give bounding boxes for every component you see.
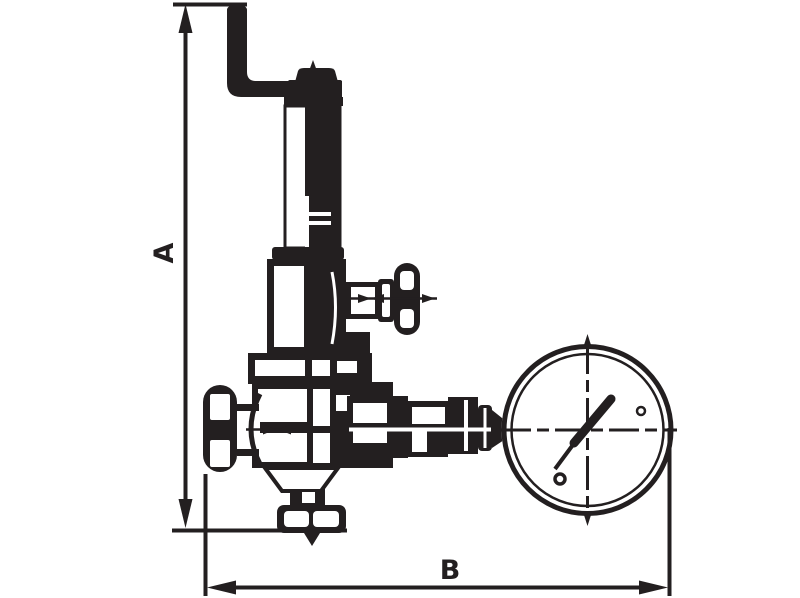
spring-housing [272, 105, 344, 260]
side-wheel-opening [400, 271, 414, 290]
dim-a-arrow-down-icon [179, 499, 193, 528]
inlet-stem-bar [237, 404, 259, 411]
dim-b-label: B [440, 555, 461, 586]
fitting-centerline [349, 428, 491, 432]
centerline-arrow-icon [422, 294, 435, 303]
housing-flange [272, 247, 344, 260]
valve-technical-drawing: A [0, 0, 800, 598]
cap-nut [295, 68, 338, 82]
gauge-boss-face [353, 403, 387, 423]
side-wheel-opening [400, 309, 414, 328]
stem-top-assembly [284, 60, 343, 106]
outlet-flange-face [284, 511, 309, 527]
centerline-tip-icon [584, 334, 591, 345]
spring-coil-line [309, 221, 331, 225]
flange-face [255, 360, 305, 376]
bonnet-face [274, 266, 304, 347]
drawing-canvas: A [0, 0, 800, 598]
gauge-fitting [347, 396, 507, 460]
spring-coil-line [309, 212, 331, 216]
inlet-stem-bar [237, 449, 259, 456]
pressure-gauge [501, 334, 677, 526]
needle-counterweight [555, 474, 565, 484]
fitting-nut [393, 396, 408, 458]
bonnet-flange [248, 353, 372, 384]
dial-stop-pin [637, 407, 645, 415]
gauge-boss-face [353, 431, 387, 443]
outlet-cone [265, 468, 338, 491]
spring-fill [305, 105, 341, 249]
body-face [258, 432, 307, 462]
dim-b-arrow-left-icon [207, 581, 236, 595]
dim-a-arrow-up-icon [179, 4, 193, 33]
inlet-wheel-opening [210, 394, 230, 420]
dim-b-arrow-right-icon [639, 581, 668, 595]
spring-gap [305, 196, 309, 247]
union-face [412, 431, 427, 452]
inlet-wheel-opening [210, 440, 230, 467]
body-face [258, 389, 307, 422]
union-face [412, 407, 445, 424]
flow-arrow-icon [304, 533, 320, 546]
fitting-nut [448, 397, 478, 454]
outlet-neck-face [302, 492, 315, 503]
flange-channel [312, 360, 330, 376]
dim-a-label: A [149, 242, 180, 263]
outlet-flange-face [313, 511, 339, 527]
outlet [265, 468, 346, 546]
nut-edge-line [464, 400, 468, 451]
side-handwheel [346, 263, 437, 335]
flange-face [337, 361, 357, 373]
lock-nut [288, 80, 342, 98]
centerline-tip-icon [584, 515, 591, 526]
